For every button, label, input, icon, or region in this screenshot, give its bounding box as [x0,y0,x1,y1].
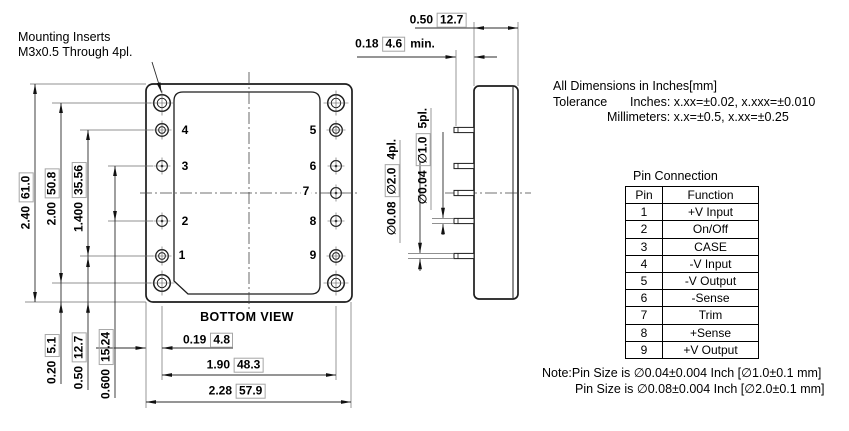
dim-hole-offset-label: 0.205.1 [45,334,60,384]
dim-pin-dia-small-label: ∅0.04∅1.05pl. [416,108,431,204]
tolerance-block: All Dimensions in Inches[mm] ToleranceIn… [553,79,815,126]
pin-table-header-row: Pin Function [626,187,759,204]
table-row: 2On/Off [626,221,759,238]
dimension-standard-heading: All Dimensions in Inches[mm] [553,79,815,95]
dim-pin-standoff-label: 0.184.6min. [355,37,435,52]
mounting-inserts-note: Mounting Inserts M3x0.5 Through 4pl. [18,30,132,60]
pin-number-8: 8 [308,214,319,228]
mounting-note-line1: Mounting Inserts [18,30,132,45]
side-body-outline [474,86,518,299]
pin-number-2: 2 [180,214,191,228]
dim-pin-row-offset-label: 0.5012.7 [72,333,87,390]
table-row: 3CASE [626,238,759,255]
dim-pin-row-span-label: 1.40035.56 [72,162,87,232]
pin-table-title: Pin Connection [633,169,718,183]
mounting-note-line2: M3x0.5 Through 4pl. [18,45,132,60]
tolerance-label: Tolerance [553,95,630,111]
pin-number-1: 1 [177,248,188,262]
dim-overall-height-label: 2.4061.0 [19,173,34,230]
dim-case-depth-label: 0.5012.7 [410,13,467,28]
dim-edge-to-pin-label: 0.194.8 [183,333,233,348]
table-row: 1+V Input [626,204,759,221]
table-row: 7Trim [626,307,759,324]
pin-number-4: 4 [180,123,191,137]
side-pins [454,127,474,258]
table-row: 8+Sense [626,324,759,341]
pin-size-note-line1: Note:Pin Size is ∅0.04±0.004 Inch [∅1.0±… [542,366,825,382]
pin-number-6: 6 [308,159,319,173]
table-row: 5-V Output [626,272,759,289]
pin-number-5: 5 [308,123,319,137]
dim-pin-dia-large-label: ∅0.08∅2.04pl. [385,139,400,235]
dim-overall-width-label: 2.2857.9 [209,384,266,399]
pin-size-note-line2: Pin Size is ∅0.08±0.004 Inch [∅2.0±0.1 m… [542,382,825,398]
dim-hole-span-label: 2.0050.8 [45,169,60,226]
table-row: 9+V Output [626,341,759,358]
tolerance-millimeters: Millimeters: x.x=±0.5, x.xx=±0.25 [553,110,815,126]
tolerance-inches: Inches: x.xx=±0.02, x.xxx=±0.010 [630,95,815,109]
engineering-drawing-page: { "drawing": { "mounting_note": { "line1… [0,0,849,431]
side-pin-row-2 [454,163,474,168]
dim-pin-row-inner-label: 0.60015.24 [99,329,114,399]
pin-size-note: Note:Pin Size is ∅0.04±0.004 Inch [∅1.0±… [542,366,825,397]
table-row: 6-Sense [626,290,759,307]
pin-table-header-function: Function [663,187,759,204]
pin-connection-table: Pin Function 1+V Input 2On/Off 3CASE 4-V… [625,186,759,359]
pin-number-9: 9 [308,248,319,262]
bottom-view-label: BOTTOM VIEW [200,310,294,324]
side-view [445,86,531,299]
dim-pin-col-span-label: 1.9048.3 [207,358,264,373]
side-pin-row-1 [454,127,474,132]
side-pin-row-4 [454,218,474,223]
side-pin-row-5 [454,253,474,258]
pin-number-3: 3 [180,159,191,173]
side-pin-row-3 [454,190,474,195]
table-row: 4-V Input [626,255,759,272]
pin-number-7: 7 [301,184,312,198]
bottom-view [140,72,358,312]
pin-table-header-pin: Pin [626,187,663,204]
